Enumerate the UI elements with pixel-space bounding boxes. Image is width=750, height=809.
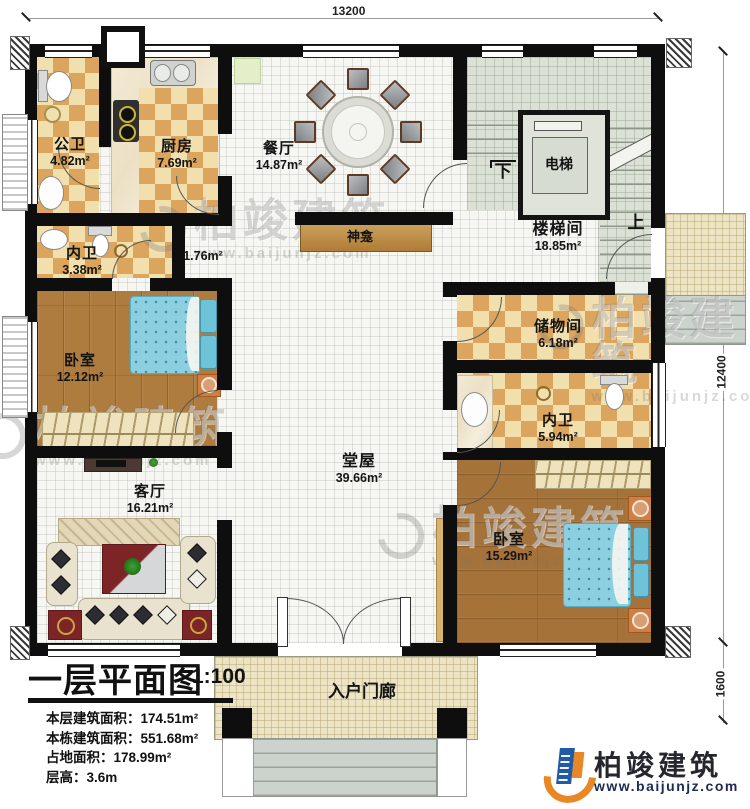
wall-segment bbox=[25, 278, 112, 291]
room-label-storage: 储物间 6.18m² bbox=[534, 318, 582, 351]
window bbox=[140, 45, 210, 58]
wall-segment bbox=[443, 505, 457, 643]
table-plant bbox=[124, 558, 141, 575]
wall-segment bbox=[217, 520, 232, 643]
window bbox=[482, 45, 523, 58]
window bbox=[652, 363, 666, 447]
wall-segment bbox=[443, 452, 457, 460]
wall-segment bbox=[25, 446, 232, 458]
entry-door-leaf bbox=[277, 597, 288, 647]
plant bbox=[149, 458, 158, 467]
stat-line: 层高：3.6m bbox=[46, 768, 198, 788]
porch-column bbox=[222, 708, 252, 738]
toilet bbox=[46, 71, 72, 102]
medallion bbox=[57, 617, 75, 635]
room-label-altar-area: 1.76m² bbox=[183, 249, 223, 264]
nightstand bbox=[628, 496, 653, 521]
stair-down-label: 下 bbox=[495, 162, 512, 182]
title-rule bbox=[28, 698, 233, 703]
floor-east-porch bbox=[665, 213, 746, 297]
corner-hatch bbox=[666, 38, 692, 68]
bed-blanket-fold bbox=[186, 297, 199, 371]
wall-segment bbox=[150, 278, 232, 291]
pillow bbox=[200, 299, 217, 333]
dining-chair bbox=[347, 174, 369, 196]
stat-line: 本栋建筑面积：551.68m² bbox=[46, 729, 198, 749]
fan-icon bbox=[632, 612, 649, 629]
wardrobe-rod bbox=[536, 473, 650, 475]
wall-segment bbox=[443, 282, 457, 297]
plant-pad bbox=[234, 58, 261, 84]
end-table bbox=[182, 610, 212, 640]
stat-line: 本层建筑面积：174.51m² bbox=[46, 709, 198, 729]
wall-segment bbox=[218, 57, 232, 134]
pillow bbox=[633, 563, 649, 597]
kitchen-sink-basin bbox=[173, 64, 190, 82]
stove-burner bbox=[119, 124, 136, 141]
toilet bbox=[605, 383, 624, 410]
plan-title: 一层平面图 bbox=[28, 653, 203, 702]
dimension-line-top bbox=[28, 18, 660, 19]
wall-segment bbox=[457, 360, 665, 373]
room-label-main-hall: 堂屋 39.66m² bbox=[336, 452, 383, 486]
dimension-top-label: 13200 bbox=[330, 4, 367, 18]
stair-up-label: 上 bbox=[628, 213, 645, 233]
wardrobe bbox=[535, 460, 651, 489]
wall-segment bbox=[443, 341, 457, 410]
corner-hatch bbox=[665, 626, 691, 658]
room-label-altar: 神龛 bbox=[347, 229, 373, 245]
wall-segment bbox=[651, 278, 665, 656]
entry-steps bbox=[252, 738, 437, 797]
brand-logo-icon bbox=[543, 742, 591, 794]
elevator-door-slit bbox=[534, 121, 582, 131]
wall-segment bbox=[217, 291, 232, 390]
room-label-entry-porch: 入户门廊 bbox=[328, 682, 396, 702]
build-stats: 本层建筑面积：174.51m² 本栋建筑面积：551.68m² 占地面积：178… bbox=[46, 709, 198, 787]
wall-segment bbox=[648, 282, 665, 295]
wardrobe-rod bbox=[43, 433, 193, 435]
window bbox=[45, 45, 92, 58]
room-label-stairwell: 楼梯间 18.85m² bbox=[532, 220, 583, 254]
stair-treads-left bbox=[467, 98, 520, 154]
pillow bbox=[633, 527, 649, 561]
nightstand bbox=[628, 608, 653, 633]
east-porch-steps bbox=[665, 295, 746, 345]
entry-door-leaf bbox=[400, 597, 411, 647]
window-sill bbox=[2, 316, 28, 418]
dimension-right-porch-label: 1600 bbox=[713, 669, 727, 700]
entry-step-side bbox=[437, 738, 467, 797]
dining-table-center bbox=[349, 123, 367, 141]
porch-column bbox=[437, 708, 467, 738]
dimension-tick bbox=[653, 12, 663, 22]
wall-segment bbox=[457, 448, 665, 460]
window bbox=[303, 45, 399, 58]
entry-step-side bbox=[222, 738, 254, 797]
room-label-elevator: 电梯 bbox=[545, 156, 573, 173]
wall-segment bbox=[295, 212, 453, 225]
room-label-public-bath: 公卫 4.82m² bbox=[50, 136, 90, 169]
room-label-bedroom-2: 卧室 15.29m² bbox=[486, 531, 533, 564]
wall-segment bbox=[25, 213, 232, 226]
chaise-mat bbox=[58, 518, 180, 546]
medallion bbox=[190, 617, 207, 634]
dimension-tick bbox=[21, 12, 31, 22]
window-sill bbox=[2, 114, 28, 211]
stair-entry-treads bbox=[615, 282, 648, 295]
room-label-kitchen: 厨房 7.69m² bbox=[157, 138, 197, 171]
kitchen-sink-basin bbox=[154, 64, 171, 82]
floor-drain bbox=[44, 106, 61, 123]
brand-url: www.baijunjz.com bbox=[594, 778, 739, 794]
chimney-flue bbox=[101, 26, 145, 68]
wall-segment bbox=[453, 57, 467, 160]
stove-burner bbox=[119, 106, 136, 123]
window bbox=[594, 45, 637, 58]
room-label-living: 客厅 16.21m² bbox=[127, 483, 174, 516]
floor-drain bbox=[536, 386, 551, 401]
room-label-dining: 餐厅 14.87m² bbox=[256, 140, 303, 173]
pillow bbox=[200, 335, 217, 369]
corner-hatch bbox=[10, 36, 30, 70]
dining-chair bbox=[347, 68, 369, 90]
room-label-inner-bath-2: 内卫 5.94m² bbox=[538, 412, 578, 445]
wall-segment bbox=[453, 282, 615, 295]
dimension-right-main-label: 12400 bbox=[715, 353, 729, 390]
corner-hatch bbox=[10, 626, 30, 660]
dining-chair bbox=[400, 121, 422, 143]
plan-scale: 1:100 bbox=[192, 665, 246, 689]
stair-arrow bbox=[490, 160, 492, 168]
tv bbox=[96, 460, 126, 467]
washbasin bbox=[38, 176, 64, 210]
bed-blanket-fold bbox=[612, 524, 628, 604]
window bbox=[500, 644, 596, 657]
room-label-inner-bath-1: 内卫 3.38m² bbox=[62, 245, 102, 278]
end-table bbox=[48, 610, 82, 640]
floor-plan-page: 13200 12400 1600 柏竣建筑 www.baijunjz.com 柏… bbox=[0, 0, 750, 809]
wall-segment bbox=[99, 57, 111, 147]
fan-icon bbox=[632, 500, 649, 517]
stat-line: 占地面积：178.99m² bbox=[46, 748, 198, 768]
room-label-bedroom-1: 卧室 12.12m² bbox=[57, 352, 104, 385]
wall-segment bbox=[651, 44, 665, 228]
